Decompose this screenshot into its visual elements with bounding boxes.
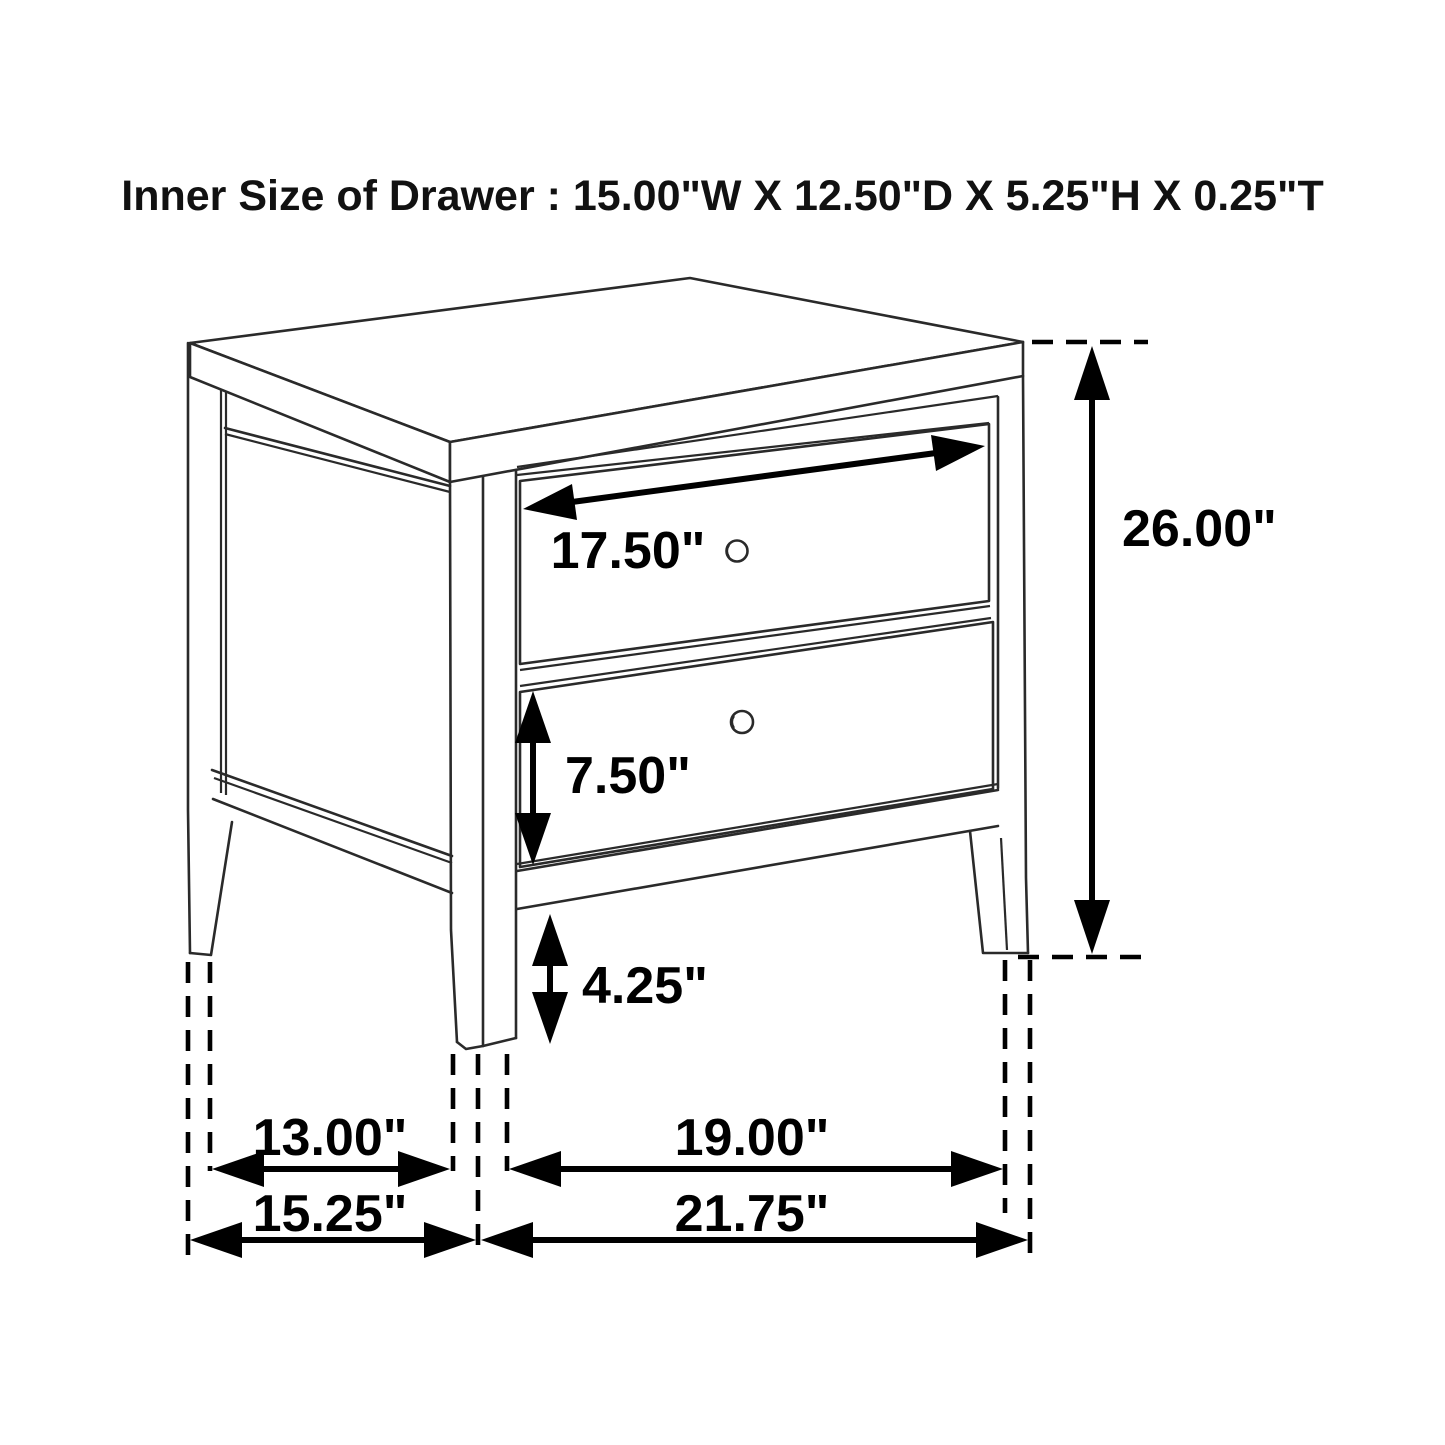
nightstand-drawing [188,278,1028,1049]
dim-overall-height-arrow [1074,346,1110,954]
dim-side-leg-span-label: 13.00" [253,1109,408,1167]
dim-overall-depth-label: 15.25" [253,1185,408,1243]
dim-overall-height-label: 26.00" [1122,500,1277,558]
furniture-dimension-diagram: 17.50" 26.00" 7.50" 4.25" 13.00" [0,0,1445,1445]
dim-drawer-width-label: 17.50" [551,522,706,580]
dim-drawer-height-label: 7.50" [565,747,691,805]
dim-overall-width-label: 21.75" [675,1185,830,1243]
dim-bottom-clearance-label: 4.25" [582,957,708,1015]
dim-front-leg-span-label: 19.00" [675,1109,830,1167]
dim-bottom-clearance-arrow [532,914,568,1044]
diagram-page: Inner Size of Drawer : 15.00"W X 12.50"D… [0,0,1445,1445]
front-left-leg [450,470,516,1049]
